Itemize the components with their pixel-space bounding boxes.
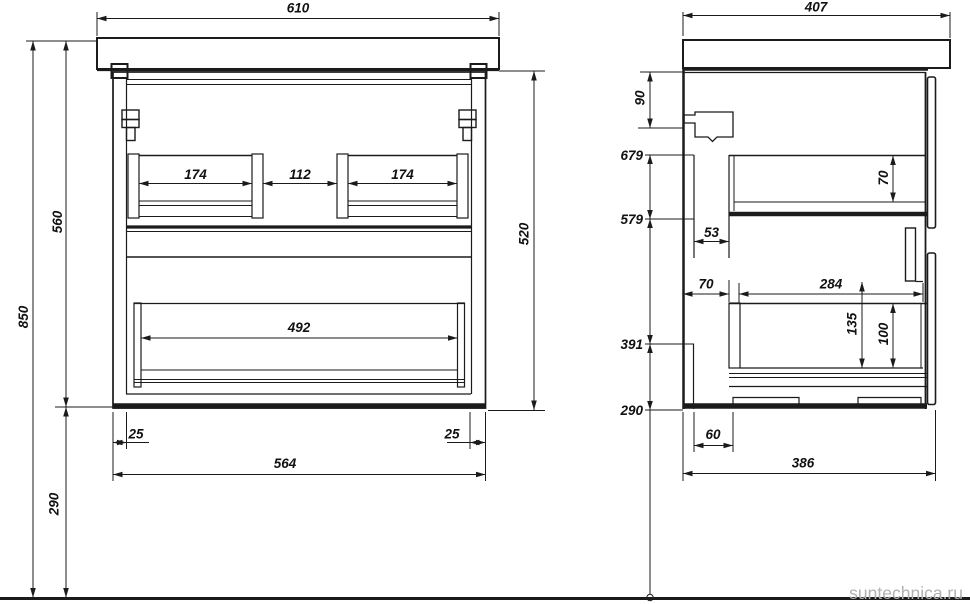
front-mid-rail [126,227,471,257]
label-side-level-4: 290 [619,403,643,418]
label-side-rear-clearance: 70 [698,277,714,292]
label-side-base-depth: 386 [792,456,815,471]
side-countertop [683,40,950,70]
label-front-cutout-right: 174 [391,167,414,182]
front-basin-frame-left [128,154,263,218]
dim-front-clearance [55,407,113,598]
vanity-dimension-drawing: 610 174 112 174 560 850 520 492 25 25 56… [0,0,970,604]
front-lower-drawer [126,303,471,394]
label-front-base-inset-right: 25 [443,427,460,442]
side-drawer-front-upper [928,77,936,228]
label-side-drawer-back-height: 135 [845,312,860,335]
label-front-cutout-gap: 112 [289,167,311,182]
dim-side-level-chain [645,155,694,601]
label-side-hanger-gap: 53 [704,225,720,240]
label-front-cabinet-height: 560 [50,210,65,233]
side-lower-drawer [729,303,927,387]
label-side-base-inset: 60 [705,427,721,442]
label-front-carcass-height: 520 [517,222,532,245]
watermark-text: suntechnica.ru [849,583,963,603]
front-hinge-left [122,110,139,141]
side-hanging-bracket [684,112,733,142]
label-front-clearance: 290 [47,492,62,516]
label-front-overall-height: 850 [16,305,31,328]
dimension-labels: 610 174 112 174 560 850 520 492 25 25 56… [16,0,891,516]
label-front-base-inset-left: 25 [127,427,144,442]
side-upper-drawer [729,156,927,215]
side-drawer-back-panel [906,228,924,282]
label-front-drawer-width: 492 [287,320,311,335]
side-dimensions [638,12,950,601]
label-side-level-3: 391 [620,337,643,352]
front-carcass [113,72,486,408]
label-side-drawer-depth: 284 [819,277,843,292]
side-plinth [683,344,927,409]
side-hanger-channel [694,155,734,258]
side-view [683,40,950,409]
label-side-level-1: 679 [620,148,643,163]
label-side-level-2: 579 [620,212,643,227]
drawing-canvas: 610 174 112 174 560 850 520 492 25 25 56… [0,0,970,604]
label-side-hanger-drop: 90 [633,90,648,106]
label-side-drawer-side-height: 100 [876,322,891,345]
front-hinge-right [459,110,476,141]
front-view [97,38,499,408]
label-front-base-width: 564 [274,456,297,471]
front-countertop [97,38,499,70]
label-side-upper-drawer-height: 70 [876,170,891,186]
front-dimensions [26,12,545,598]
label-front-cutout-left: 174 [184,167,207,182]
label-side-overall-depth: 407 [804,0,829,15]
dim-side-overall-depth [683,12,950,38]
dim-front-base-inset-right [447,412,486,481]
dim-front-overall-width [97,12,499,36]
label-front-overall-width: 610 [287,1,310,16]
side-carcass [683,72,926,409]
dim-front-base-inset-left [113,412,149,481]
side-drawer-front-lower [928,253,936,405]
front-basin-frame-right [337,154,468,218]
